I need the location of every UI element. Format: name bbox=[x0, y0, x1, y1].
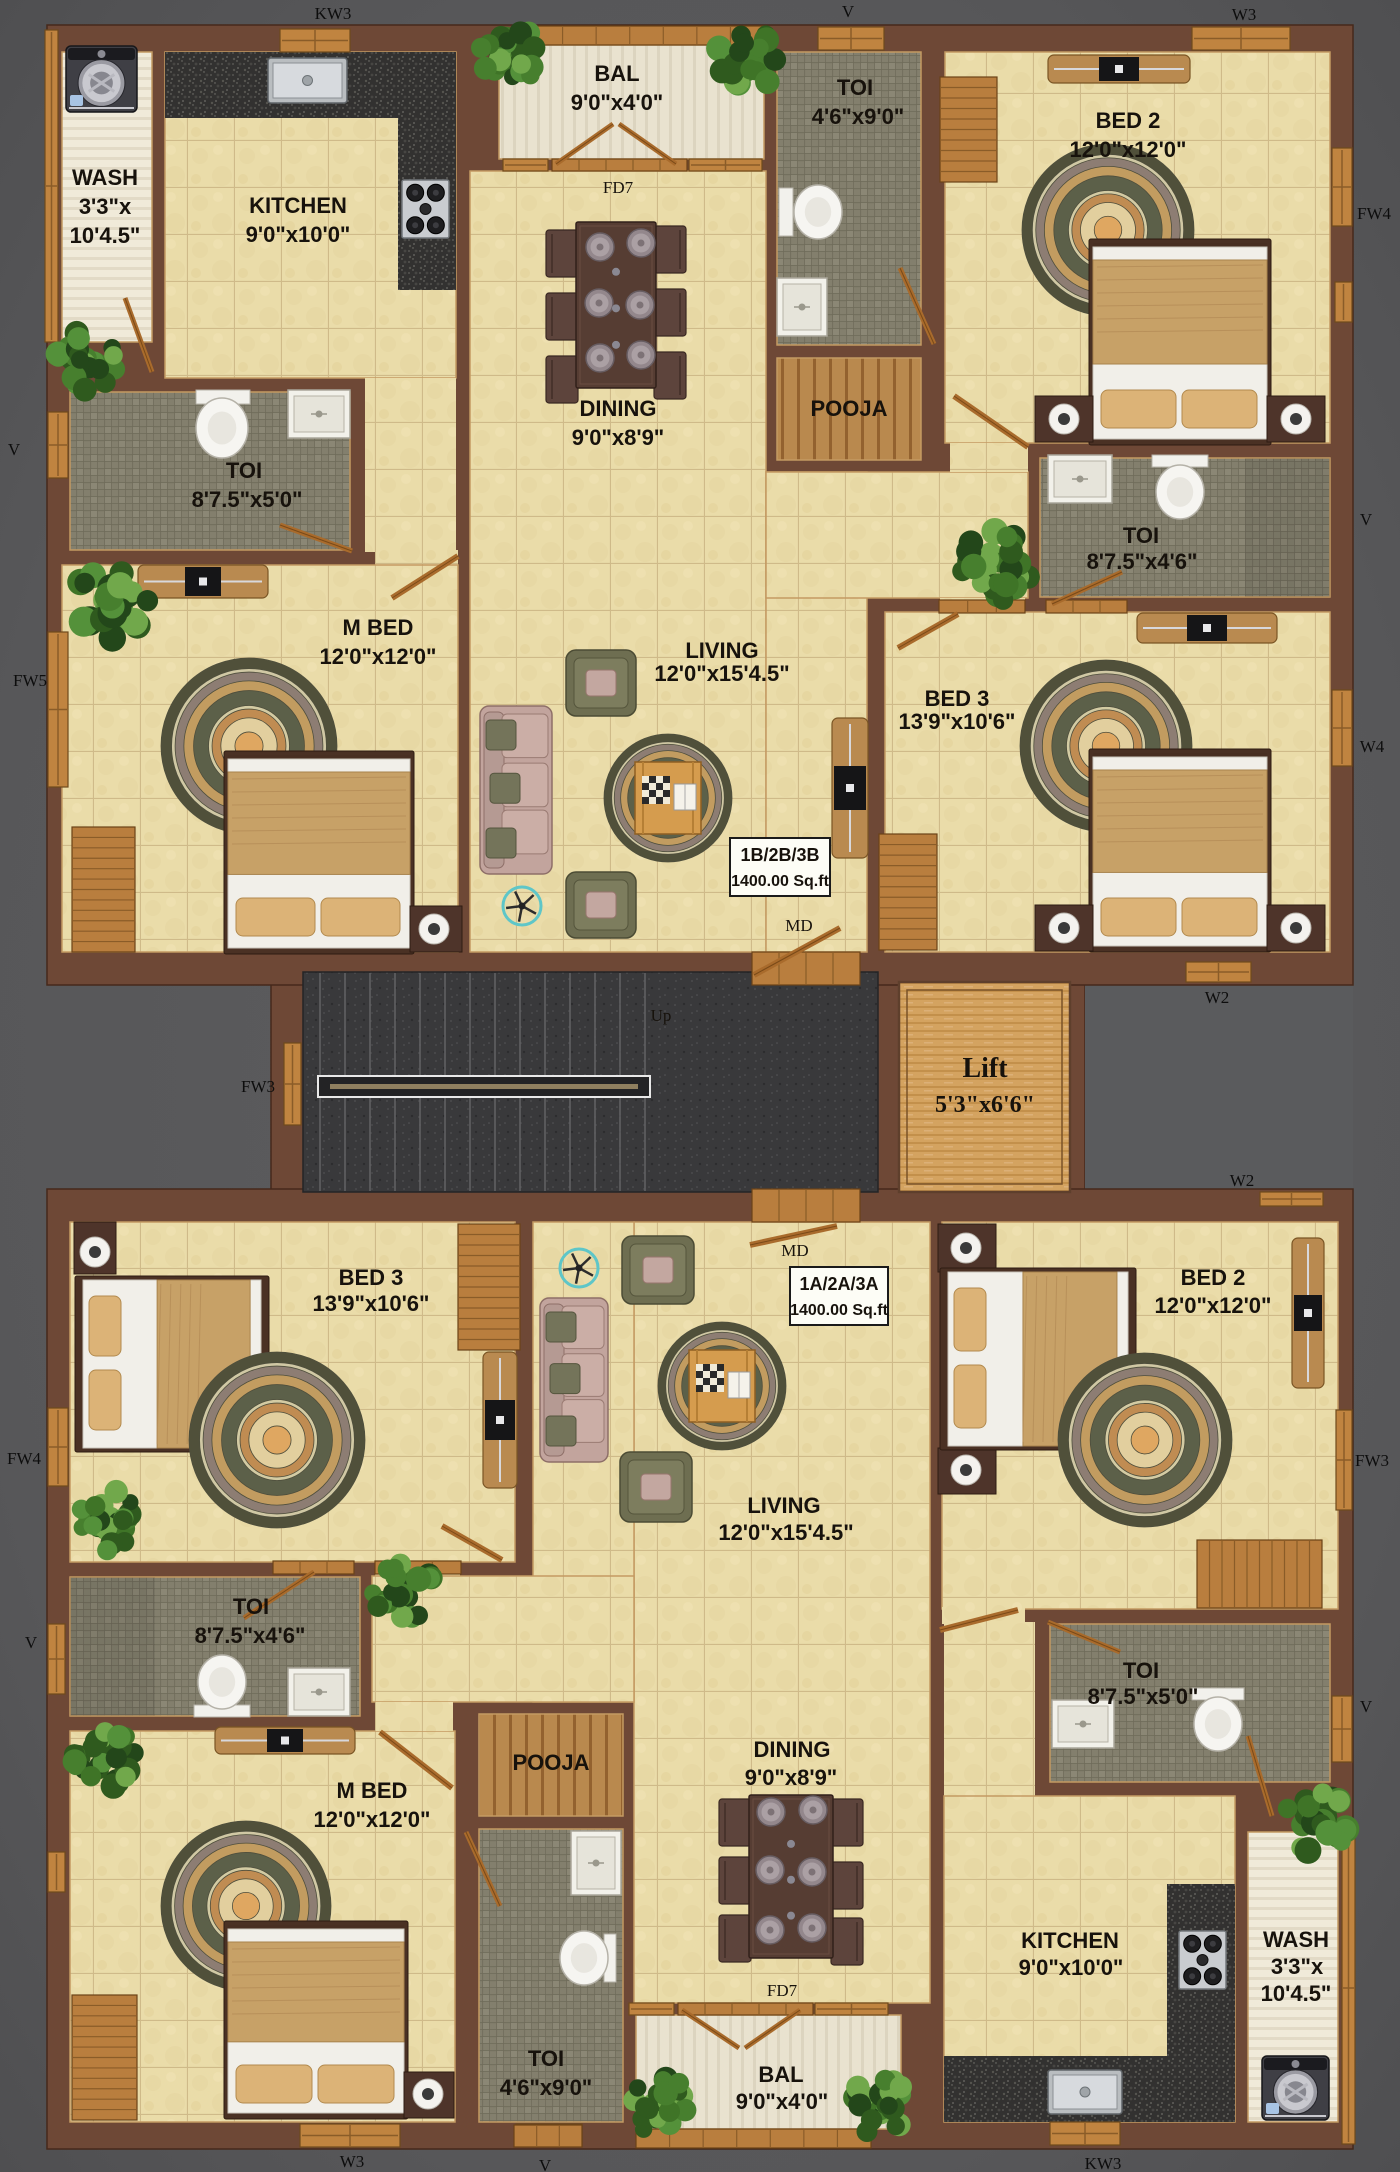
svg-text:DINING: DINING bbox=[754, 1737, 831, 1762]
svg-text:1B/2B/3B: 1B/2B/3B bbox=[740, 845, 819, 865]
svg-text:BED 3: BED 3 bbox=[925, 686, 990, 711]
svg-text:8'7.5"x5'0": 8'7.5"x5'0" bbox=[192, 487, 303, 512]
svg-text:TOI: TOI bbox=[226, 458, 262, 483]
svg-text:3'3"x: 3'3"x bbox=[79, 194, 132, 219]
svg-text:12'0"x15'4.5": 12'0"x15'4.5" bbox=[654, 661, 789, 686]
svg-text:8'7.5"x4'6": 8'7.5"x4'6" bbox=[195, 1623, 306, 1648]
svg-text:BAL: BAL bbox=[758, 2062, 803, 2087]
svg-text:13'9"x10'6": 13'9"x10'6" bbox=[313, 1291, 430, 1316]
svg-text:4'6"x9'0": 4'6"x9'0" bbox=[500, 2075, 593, 2100]
svg-text:1400.00 Sq.ft: 1400.00 Sq.ft bbox=[790, 1302, 889, 1319]
svg-text:12'0"x15'4.5": 12'0"x15'4.5" bbox=[718, 1520, 853, 1545]
svg-text:FW5: FW5 bbox=[13, 671, 47, 690]
svg-text:BED 3: BED 3 bbox=[339, 1265, 404, 1290]
svg-text:12'0"x12'0": 12'0"x12'0" bbox=[314, 1807, 431, 1832]
svg-text:KITCHEN: KITCHEN bbox=[1021, 1928, 1119, 1953]
svg-text:FD7: FD7 bbox=[603, 178, 634, 197]
svg-text:TOI: TOI bbox=[1123, 1658, 1159, 1683]
svg-text:M BED: M BED bbox=[343, 615, 414, 640]
svg-text:MD: MD bbox=[785, 916, 812, 935]
svg-text:12'0"x12'0": 12'0"x12'0" bbox=[1155, 1293, 1272, 1318]
svg-text:V: V bbox=[539, 2156, 552, 2172]
svg-text:FW4: FW4 bbox=[1357, 204, 1392, 223]
svg-text:BED 2: BED 2 bbox=[1181, 1265, 1246, 1290]
svg-text:W3: W3 bbox=[340, 2152, 365, 2171]
svg-text:10'4.5": 10'4.5" bbox=[1261, 1981, 1332, 2006]
svg-text:8'7.5"x5'0": 8'7.5"x5'0" bbox=[1088, 1684, 1199, 1709]
svg-text:9'0"x10'0": 9'0"x10'0" bbox=[1019, 1955, 1124, 1980]
svg-text:W3: W3 bbox=[1232, 5, 1257, 24]
svg-text:8'7.5"x4'6": 8'7.5"x4'6" bbox=[1087, 549, 1198, 574]
svg-text:1400.00 Sq.ft: 1400.00 Sq.ft bbox=[731, 873, 830, 890]
svg-text:M BED: M BED bbox=[337, 1778, 408, 1803]
svg-text:TOI: TOI bbox=[233, 1594, 269, 1619]
svg-text:FW3: FW3 bbox=[1355, 1451, 1389, 1470]
svg-text:5'3"x6'6": 5'3"x6'6" bbox=[935, 1092, 1035, 1118]
svg-text:LIVING: LIVING bbox=[685, 638, 758, 663]
svg-text:W2: W2 bbox=[1230, 1171, 1255, 1190]
svg-text:3'3"x: 3'3"x bbox=[1271, 1954, 1324, 1979]
svg-text:KITCHEN: KITCHEN bbox=[249, 193, 347, 218]
svg-text:9'0"x10'0": 9'0"x10'0" bbox=[246, 222, 351, 247]
svg-text:12'0"x12'0": 12'0"x12'0" bbox=[1070, 137, 1187, 162]
svg-text:FW3: FW3 bbox=[241, 1077, 275, 1096]
svg-text:POOJA: POOJA bbox=[810, 396, 887, 421]
svg-text:FW4: FW4 bbox=[7, 1449, 42, 1468]
svg-text:4'6"x9'0": 4'6"x9'0" bbox=[812, 104, 905, 129]
svg-text:9'0"x8'9": 9'0"x8'9" bbox=[745, 1765, 838, 1790]
svg-text:KW3: KW3 bbox=[315, 4, 352, 23]
svg-text:W2: W2 bbox=[1205, 988, 1230, 1007]
svg-text:FD7: FD7 bbox=[767, 1981, 798, 2000]
svg-text:MD: MD bbox=[781, 1241, 808, 1260]
svg-text:DINING: DINING bbox=[580, 396, 657, 421]
svg-text:1A/2A/3A: 1A/2A/3A bbox=[799, 1274, 878, 1294]
svg-text:BED 2: BED 2 bbox=[1096, 108, 1161, 133]
svg-text:BAL: BAL bbox=[594, 61, 639, 86]
svg-text:V: V bbox=[8, 440, 21, 459]
svg-text:TOI: TOI bbox=[837, 75, 873, 100]
svg-text:V: V bbox=[25, 1633, 38, 1652]
svg-text:W4: W4 bbox=[1360, 737, 1385, 756]
svg-text:9'0"x4'0": 9'0"x4'0" bbox=[571, 90, 664, 115]
svg-text:LIVING: LIVING bbox=[747, 1493, 820, 1518]
svg-text:13'9"x10'6": 13'9"x10'6" bbox=[899, 709, 1016, 734]
svg-text:KW3: KW3 bbox=[1085, 2154, 1122, 2172]
svg-text:V: V bbox=[1360, 1697, 1373, 1716]
svg-text:V: V bbox=[1360, 510, 1373, 529]
svg-text:10'4.5": 10'4.5" bbox=[70, 223, 141, 248]
svg-text:9'0"x8'9": 9'0"x8'9" bbox=[572, 425, 665, 450]
svg-text:POOJA: POOJA bbox=[512, 1750, 589, 1775]
svg-text:Lift: Lift bbox=[962, 1053, 1008, 1084]
svg-text:TOI: TOI bbox=[528, 2046, 564, 2071]
svg-text:V: V bbox=[842, 2, 855, 21]
svg-text:WASH: WASH bbox=[72, 165, 138, 190]
svg-text:TOI: TOI bbox=[1123, 523, 1159, 548]
svg-text:WASH: WASH bbox=[1263, 1927, 1329, 1952]
svg-text:Up: Up bbox=[651, 1006, 672, 1025]
svg-text:9'0"x4'0": 9'0"x4'0" bbox=[736, 2089, 829, 2114]
svg-text:12'0"x12'0": 12'0"x12'0" bbox=[320, 644, 437, 669]
